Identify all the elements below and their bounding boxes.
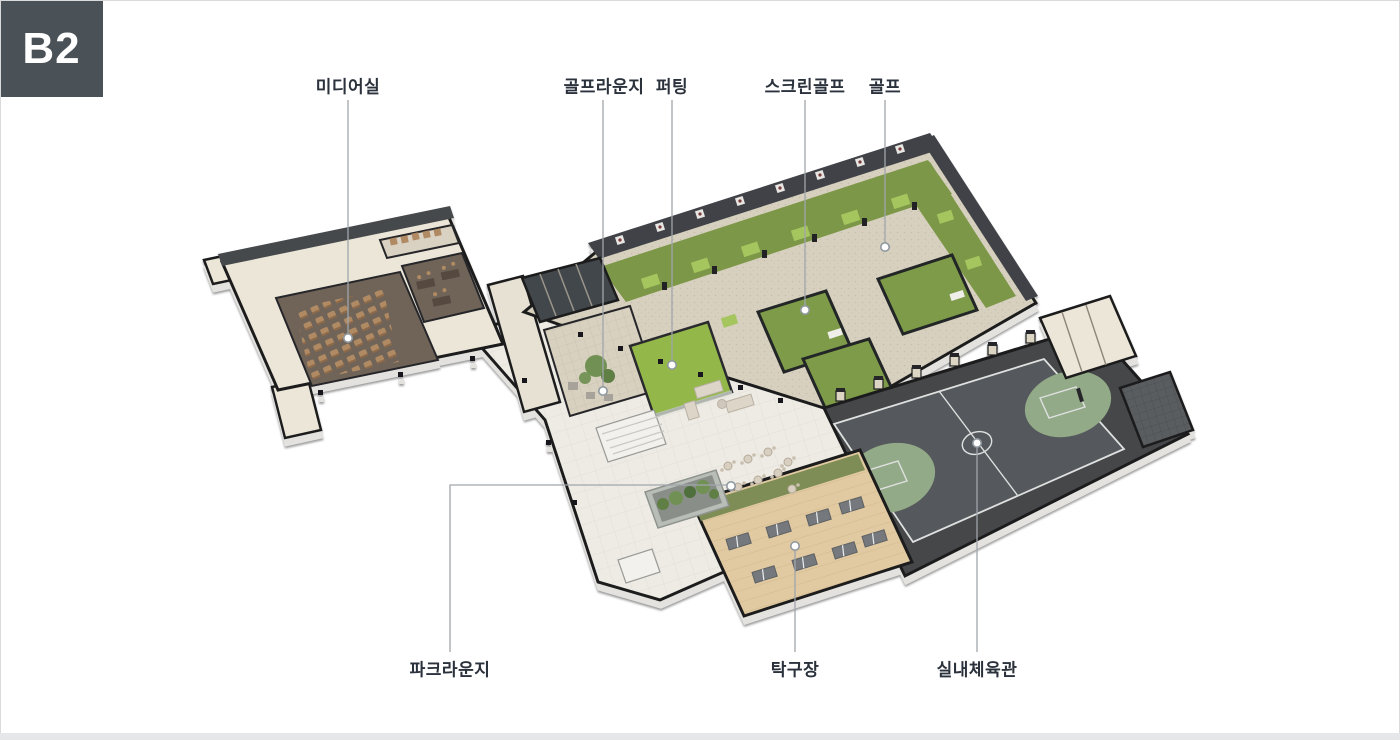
- label-putting: 퍼팅: [656, 73, 688, 98]
- building: [204, 133, 1193, 616]
- label-golf: 골프: [869, 73, 901, 98]
- label-table-tennis: 탁구장: [771, 656, 819, 681]
- label-park-lounge: 파크라운지: [410, 656, 491, 681]
- label-media-room: 미디어실: [316, 73, 381, 98]
- label-gym: 실내체육관: [937, 656, 1018, 681]
- label-golf-lounge: 골프라운지: [564, 73, 645, 98]
- bottom-bar: [0, 733, 1400, 740]
- level-badge: B2: [0, 0, 103, 97]
- floorplan-page: B2: [0, 0, 1400, 740]
- floorplan-illustration: [0, 0, 1400, 740]
- media-room-wing: [204, 206, 503, 438]
- label-screen-golf: 스크린골프: [765, 73, 846, 98]
